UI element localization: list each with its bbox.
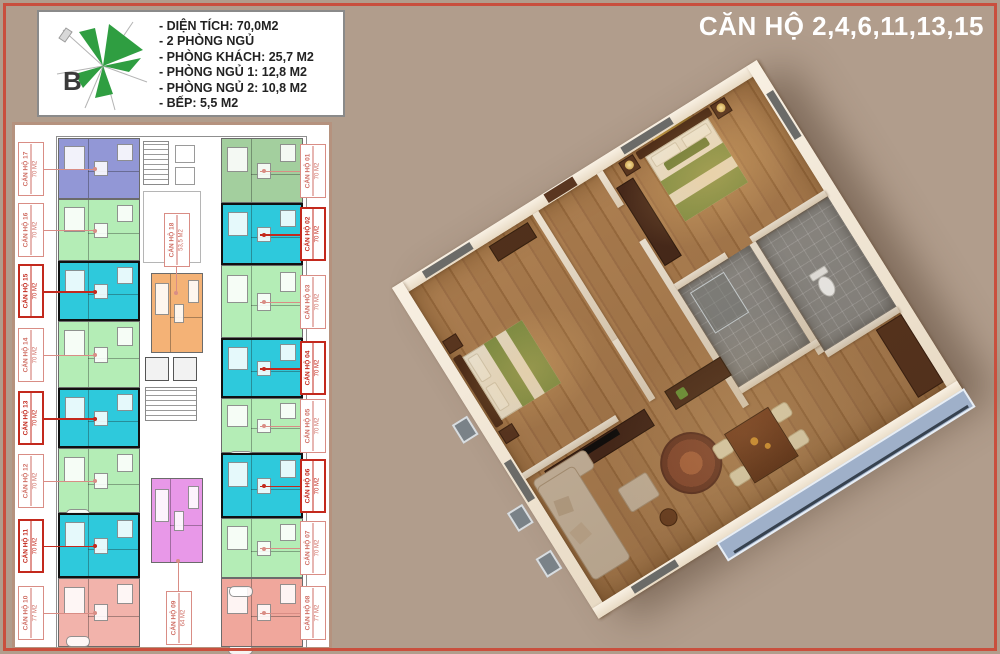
label-leader — [178, 561, 179, 591]
unit-label: CĂN HỘ 0670 M2 — [300, 459, 326, 513]
unit-label: CĂN HỘ 0570 M2 — [300, 399, 326, 453]
leader-dot — [93, 479, 97, 483]
leader-dot — [262, 233, 266, 237]
site-plan-unit — [151, 478, 203, 563]
plant — [675, 387, 689, 401]
leader-dot — [262, 547, 266, 551]
label-leader — [44, 355, 97, 356]
poster-canvas: CĂN HỘ 2,4,6,11,13,15 B - DIỆN TÍCH: 70,… — [0, 0, 1000, 654]
spec-box: B - DIỆN TÍCH: 70,0M2 - 2 PHÒNG NGỦ - PH… — [37, 10, 345, 117]
leader-dot — [262, 611, 266, 615]
unit-label: CĂN HỘ 0877 M2 — [300, 586, 326, 640]
label-leader — [44, 230, 97, 231]
unit-label: CĂN HỘ 0470 M2 — [300, 341, 326, 395]
spec-item: - PHÒNG NGỦ 2: 10,8 M2 — [159, 81, 314, 96]
label-leader — [260, 302, 300, 303]
unit-label: CĂN HỘ 1270 M2 — [18, 454, 44, 508]
floor-plan-layer: CĂN HỘ 1770 M2CĂN HỘ 1670 M2CĂN HỘ 1570 … — [15, 125, 329, 647]
elevator — [173, 357, 197, 381]
leader-dot — [93, 167, 97, 171]
leader-dot — [174, 291, 178, 295]
unit-label: CĂN HỘ 1470 M2 — [18, 328, 44, 382]
apartment-3d-render — [392, 60, 963, 619]
leader-dot — [262, 169, 266, 173]
unit-label: CĂN HỘ 0170 M2 — [300, 144, 326, 198]
spec-item: - BẾP: 5,5 M2 — [159, 96, 314, 111]
unit-label: CĂN HỘ 1370 M2 — [18, 391, 44, 445]
logo-letter: B — [63, 66, 82, 96]
unit-label: CĂN HỘ 1770 M2 — [18, 142, 44, 196]
label-leader — [44, 169, 97, 170]
stairs-top — [143, 141, 169, 185]
unit-label: CĂN HỘ 0770 M2 — [300, 521, 326, 575]
label-leader — [260, 368, 300, 370]
leader-dot — [93, 611, 97, 615]
label-leader — [44, 481, 97, 482]
label-leader — [260, 548, 300, 549]
label-leader — [44, 546, 97, 548]
unit-label: CĂN HỘ 1853,5 M2 — [164, 213, 190, 267]
spec-list: - DIỆN TÍCH: 70,0M2 - 2 PHÒNG NGỦ - PHÒN… — [159, 19, 314, 111]
leader-dot — [93, 229, 97, 233]
service-shaft — [175, 167, 195, 185]
brand-logo-icon: B — [51, 16, 151, 112]
spec-item: - PHÒNG NGỦ 1: 12,8 M2 — [159, 65, 314, 80]
unit-label: CĂN HỘ 0270 M2 — [300, 207, 326, 261]
label-leader — [260, 234, 300, 236]
label-leader — [260, 426, 300, 427]
leader-dot — [262, 424, 266, 428]
label-leader — [44, 291, 97, 293]
label-leader — [260, 486, 300, 488]
label-leader — [260, 613, 300, 614]
unit-label: CĂN HỘ 1077 M2 — [18, 586, 44, 640]
spec-item: - 2 PHÒNG NGỦ — [159, 34, 314, 49]
leader-dot — [262, 367, 266, 371]
unit-label: CĂN HỘ 1170 M2 — [18, 519, 44, 573]
unit-label: CĂN HỘ 0370 M2 — [300, 275, 326, 329]
leader-dot — [176, 559, 180, 563]
elevator — [145, 357, 169, 381]
unit-label: CĂN HỘ 1570 M2 — [18, 264, 44, 318]
site-plan-unit — [151, 273, 203, 353]
leader-dot — [93, 544, 97, 548]
leader-dot — [93, 353, 97, 357]
spec-item: - PHÒNG KHÁCH: 25,7 M2 — [159, 50, 314, 65]
leader-dot — [262, 300, 266, 304]
unit-label: CĂN HỘ 0964 M2 — [166, 591, 192, 645]
label-leader — [44, 613, 97, 614]
label-leader — [44, 418, 97, 420]
site-plan-panel: CĂN HỘ 1770 M2CĂN HỘ 1670 M2CĂN HỘ 1570 … — [12, 122, 332, 650]
spec-item: - DIỆN TÍCH: 70,0M2 — [159, 19, 314, 34]
label-leader — [260, 171, 300, 172]
service-shaft — [175, 145, 195, 163]
leader-dot — [93, 290, 97, 294]
page-title: CĂN HỘ 2,4,6,11,13,15 — [699, 11, 984, 42]
leader-dot — [93, 417, 97, 421]
leader-dot — [262, 484, 266, 488]
stairs-mid — [145, 387, 197, 421]
unit-label: CĂN HỘ 1670 M2 — [18, 203, 44, 257]
